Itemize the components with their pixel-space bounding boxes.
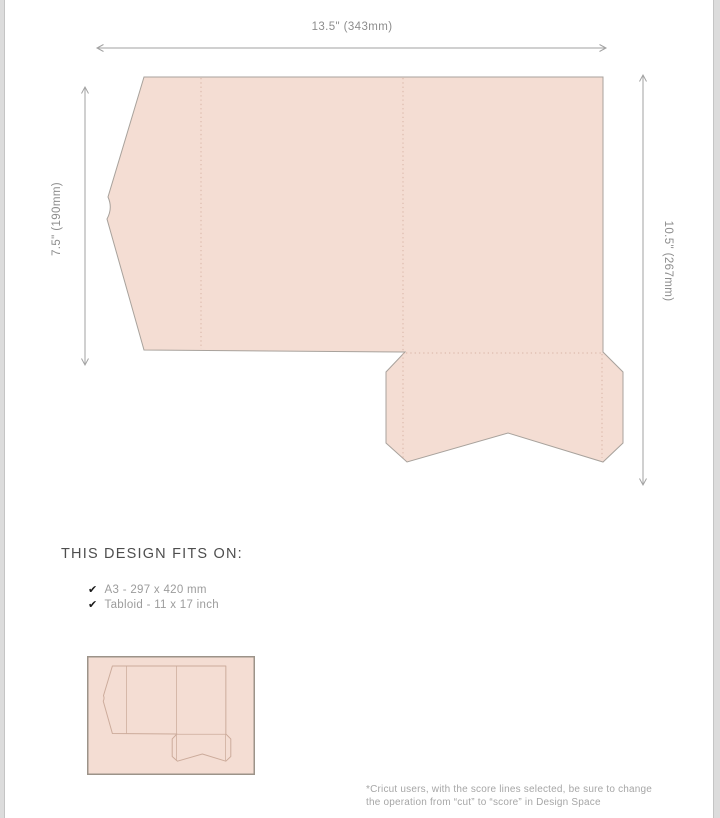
fits-on-section: THIS DESIGN FITS ON: ✔ A3 - 297 x 420 mm…	[61, 546, 243, 612]
fits-item-a3: ✔ A3 - 297 x 420 mm	[88, 583, 243, 598]
left-height-dimension-arrow	[82, 87, 89, 365]
checkmark-icon: ✔	[88, 598, 98, 613]
fits-item-label: A3 - 297 x 420 mm	[105, 583, 207, 598]
checkmark-icon: ✔	[88, 583, 98, 598]
width-dimension-arrow	[97, 45, 606, 52]
fits-on-heading: THIS DESIGN FITS ON:	[61, 546, 243, 562]
fits-on-list: ✔ A3 - 297 x 420 mm ✔ Tabloid - 11 x 17 …	[88, 583, 243, 612]
dimension-left-height-label: 7.5" (190mm)	[51, 139, 63, 299]
dimension-right-height-label: 10.5" (267mm)	[662, 181, 674, 341]
folder-template-diagram	[0, 0, 720, 510]
sheet-preview-thumbnail	[87, 656, 255, 775]
footnote-line-2: the operation from “cut” to “score” in D…	[366, 797, 652, 810]
sheet-rect	[88, 657, 255, 775]
dimension-width-label: 13.5" (343mm)	[252, 21, 452, 33]
fits-item-tabloid: ✔ Tabloid - 11 x 17 inch	[88, 598, 243, 613]
right-height-dimension-arrow	[640, 75, 647, 485]
cricut-footnote: *Cricut users, with the score lines sele…	[366, 784, 652, 809]
page: 13.5" (343mm) 7.5" (190mm) 10.5" (267mm)…	[0, 0, 720, 818]
fits-item-label: Tabloid - 11 x 17 inch	[105, 598, 219, 613]
folder-cut-outline	[107, 77, 623, 462]
footnote-line-1: *Cricut users, with the score lines sele…	[366, 784, 652, 797]
